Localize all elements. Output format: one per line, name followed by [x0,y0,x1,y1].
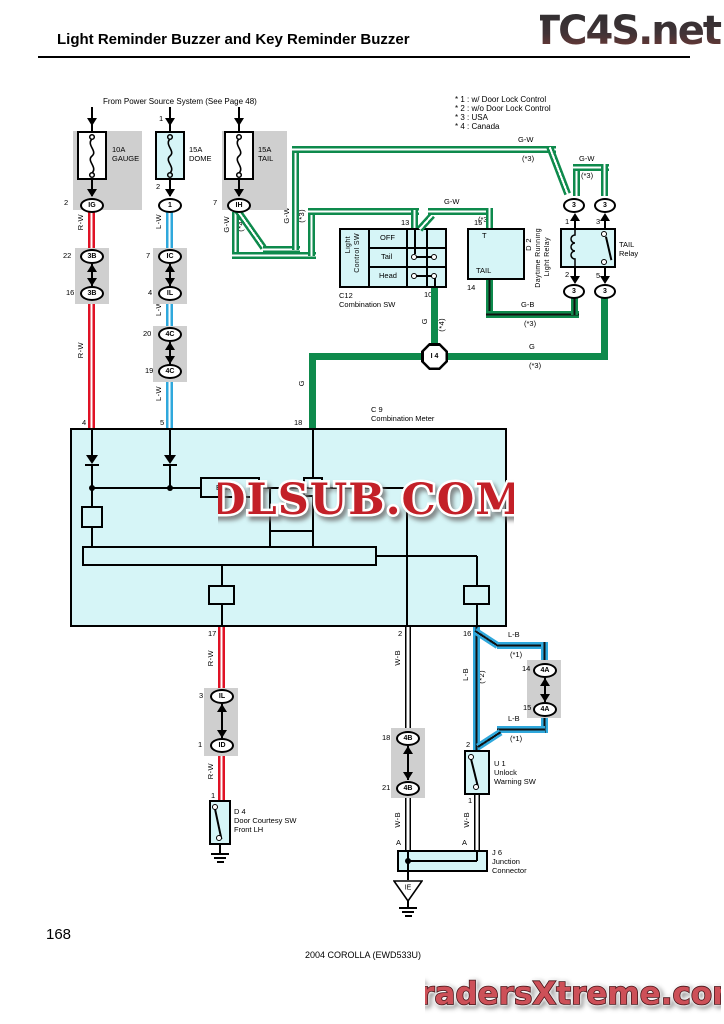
pin-label: 20 [143,330,151,338]
pin-label: 16 [463,630,471,638]
circuit-line [91,487,201,489]
up-arrow-icon [87,264,97,272]
wire-g-w [308,208,419,215]
pin-label: A [462,839,467,847]
connector-oval: 3B [80,286,104,301]
fuse-name-label: GAUGE [112,155,139,163]
circuit-line [407,872,409,880]
connector-oval: 4B [396,731,420,746]
pin-label: 1 [198,741,202,749]
circuit-line [407,860,477,862]
relay-terminal-label: T [482,232,487,240]
pin-label: 16 [66,289,74,297]
wire-color-label: L-B [508,715,520,723]
pin-label: 14 [522,665,530,673]
circuit-line [169,428,171,455]
pin-label: 1 [565,218,569,226]
page-title: Light Reminder Buzzer and Key Reminder B… [57,35,410,45]
wire-g-w [292,146,299,250]
wire-g-w [601,164,608,196]
component-id: U 1 [494,760,506,768]
circuit-line [221,605,223,627]
fuse-icon [232,133,246,179]
component-id: C12 [339,292,353,300]
component-name: TAIL [619,241,634,249]
connector-oval: 4A [533,702,557,717]
wire-color-label: R-W [76,214,85,230]
component-id: D 4 [234,808,246,816]
pin-label: 19 [145,367,153,375]
pin-label: 21 [382,784,390,792]
connector-oval: IL [158,286,182,301]
component-name: Connector [492,867,527,875]
connector-oval: IC [158,249,182,264]
fuse-name-label: DOME [189,155,212,163]
contact-icon [601,259,607,265]
contact-icon [212,804,218,810]
wire-g [309,353,605,360]
pin-label: 15 [523,704,531,712]
contact-icon [216,835,222,841]
up-arrow-icon [403,746,413,754]
pin-label: 18 [294,419,302,427]
contact-icon [468,754,474,760]
wire-color-label: L-B [461,668,470,681]
ground-icon [217,861,224,863]
diode-icon [86,455,98,464]
connector-oval: 4C [158,327,182,342]
connector-oval: 3 [563,198,585,213]
down-arrow-icon [165,356,175,364]
up-arrow-icon [570,213,580,221]
switch-name-label: Light [344,236,353,253]
down-arrow-icon [540,694,550,702]
pin-label: A [396,839,401,847]
circuit-line [476,556,478,585]
component-name: Relay [619,250,638,258]
component-id: C 9 [371,406,383,414]
ground-code: IE [405,885,412,892]
wire-color-label: G [420,318,429,324]
wire-g [309,353,316,428]
wire-color-label: G [529,343,535,351]
wire-g-w [486,208,493,228]
pin-label: 1 [159,115,163,123]
wire-variant-label: (*3) [581,172,593,180]
contact-icon [473,784,479,790]
connector-oval: 3B [80,249,104,264]
wire-g-w [428,208,490,215]
ground-icon [405,915,412,917]
junction-label: I 4 [424,346,446,368]
connector-oval: 1 [158,198,182,213]
pin-label: 2 [156,183,160,191]
up-arrow-icon [217,704,227,712]
down-arrow-icon [165,118,175,126]
fuse-amp-label: 15A [189,146,202,154]
wire-r-w [88,212,95,428]
connector-oval: 3 [594,284,616,299]
wire-color-label: W-B [393,650,402,666]
contact-icon [411,254,417,260]
dlsub-watermark: DLSUB.COM [218,462,514,538]
wire-g [431,288,438,350]
down-arrow-icon [234,189,244,197]
wire-variant-label: (*3) [522,155,534,163]
pin-label: 14 [467,284,475,292]
tradersxtreme-watermark: TradersXtreme.com [425,968,721,1020]
relay-terminal-label: TAIL [476,267,491,275]
circuit-line [476,605,478,627]
connector-oval: IG [80,198,104,213]
note-4: * 4 : Canada [455,122,499,131]
junction-dot [89,485,95,491]
down-arrow-icon [165,278,175,286]
component-square [463,585,490,605]
component-id: J 6 [492,849,502,857]
connector-oval: 3 [594,198,616,213]
down-arrow-icon [600,276,610,284]
tc4s-logo-text: TC4S.net [540,8,722,54]
contact-icon [411,273,417,279]
fuse-name-label: TAIL [258,155,273,163]
up-arrow-icon [540,678,550,686]
pin-label: 2 [466,741,470,749]
pin-label: 3 [199,692,203,700]
wire-l-b [497,642,545,649]
component-square [81,506,103,528]
note-3: * 3 : USA [455,113,488,122]
grid-line [369,266,447,268]
wire-l-b [473,627,480,750]
pin-label: 7 [213,199,217,207]
junction-dot [405,858,411,864]
contact-icon [431,254,437,260]
component-name: Combination SW [339,301,395,309]
fuse-amp-label: 10A [112,146,125,154]
component-name: Unlock [494,769,517,777]
wire-variant-label: (*1) [510,651,522,659]
connector-oval: 4C [158,364,182,379]
component-name: Daytime Running [534,228,543,288]
up-arrow-icon [165,264,175,272]
wire-color-label: W-B [393,812,402,828]
ground-icon [399,907,417,909]
circuit-line [377,555,477,557]
pin-label: 1 [211,792,215,800]
connector-oval: 4A [533,663,557,678]
contact-line [434,278,436,288]
component-id: D 2 [524,238,533,251]
wire-g-w [546,146,570,195]
fuse-icon [163,133,177,179]
pin-label: 7 [146,252,150,260]
wire-w-b [474,795,480,850]
down-arrow-icon [234,118,244,126]
junction-dot [167,485,173,491]
wire-color-label: W-B [462,812,471,828]
circuit-line [91,528,93,546]
circuit-bar [82,546,377,566]
wire-l-b [497,726,545,733]
pin-label: 17 [208,630,216,638]
note-1: * 1 : w/ Door Lock Control [455,95,546,104]
wire-color-label: G-W [579,155,594,163]
wire-color-label: R-W [206,650,215,666]
connector-oval: IL [210,689,234,704]
wire-color-label: G [297,380,306,386]
wire-variant-label: (*3) [529,362,541,370]
wire-color-label: R-W [76,342,85,358]
down-arrow-icon [87,278,97,286]
wire-l-w [166,212,173,428]
down-arrow-icon [403,772,413,780]
grid-line [406,228,408,288]
page-number: 168 [46,930,71,940]
component-name: Junction [492,858,520,866]
tradersxtreme-watermark-text: TradersXtreme.com [425,976,721,1012]
wire-variant-label: (*4) [437,318,446,332]
ground-stem [219,845,221,853]
contact-icon [601,231,607,237]
component-name: Door Courtesy SW [234,817,297,825]
dlsub-watermark-text: DLSUB.COM [218,475,514,525]
pin-label: 22 [63,252,71,260]
wire-g-w [308,208,315,256]
circuit-line [221,566,223,585]
down-arrow-icon [217,730,227,738]
up-arrow-icon [165,342,175,350]
diode-icon [164,455,176,464]
wire-variant-label: (*1) [510,735,522,743]
pin-label: 2 [398,630,402,638]
down-arrow-icon [87,118,97,126]
switch-position-tail: Tail [381,253,392,261]
note-2: * 2 : w/o Door Lock Control [455,104,551,113]
component-name: Light Relay [543,237,552,276]
junction-octagon: I 4 [421,343,448,370]
ground-icon [214,857,226,859]
switch-position-off: OFF [380,234,395,242]
grid-line [426,228,428,288]
title-rule [38,56,690,58]
fuse-icon [85,133,99,179]
wire-g-w [232,252,316,259]
wire-color-label: G-B [521,301,534,309]
relay-coil-icon [568,230,582,266]
footer-model: 2004 COROLLA (EWD533U) [305,950,421,960]
up-arrow-icon [600,213,610,221]
down-arrow-icon [87,189,97,197]
down-arrow-icon [570,276,580,284]
component-name: Front LH [234,826,263,834]
fuse-amp-label: 15A [258,146,271,154]
pin-label: 4 [82,419,86,427]
wiring-diagram-page: Light Reminder Buzzer and Key Reminder B… [0,0,724,1024]
grid-line [368,228,370,288]
pin-label: 18 [382,734,390,742]
ground-icon [211,853,229,855]
tc4s-logo: TC4S.net [540,2,722,56]
ground-icon [402,911,414,913]
circuit-line [91,428,93,455]
connector-oval: 3 [563,284,585,299]
wire-variant-label: (*3) [524,320,536,328]
connector-oval: 4B [396,781,420,796]
wire-color-label: R-W [206,763,215,779]
switch-name-label: Control SW [353,233,362,273]
wire-color-label: G-W [444,198,459,206]
component-square [208,585,235,605]
pin-label: 15 [474,219,482,227]
component-name: Combination Meter [371,415,434,423]
pin-label: 4 [148,289,152,297]
switch-position-head: Head [379,272,397,280]
wire-color-label: L-W [154,214,163,229]
pin-label: 5 [160,419,164,427]
connector-oval: IH [227,198,251,213]
pin-label: 13 [401,219,409,227]
contact-line [414,228,416,254]
wire-g-b [486,311,579,318]
wire-g [601,298,608,360]
down-arrow-icon [165,189,175,197]
grid-line [369,247,447,249]
power-source-note: From Power Source System (See Page 48) [103,97,257,106]
ground-triangle-icon: IE [393,880,423,902]
pin-label: 1 [468,797,472,805]
wire-g-w [292,146,556,153]
pin-label: 2 [565,271,569,279]
component-name: Warning SW [494,778,536,786]
pin-label: 2 [64,199,68,207]
wire-color-label: G-W [518,136,533,144]
connector-oval: ID [210,738,234,753]
wire-g-b [571,298,578,315]
wire-color-label: L-B [508,631,520,639]
contact-icon [431,273,437,279]
wire-color-label: G-W [222,216,231,233]
wire-color-label: L-W [154,386,163,401]
